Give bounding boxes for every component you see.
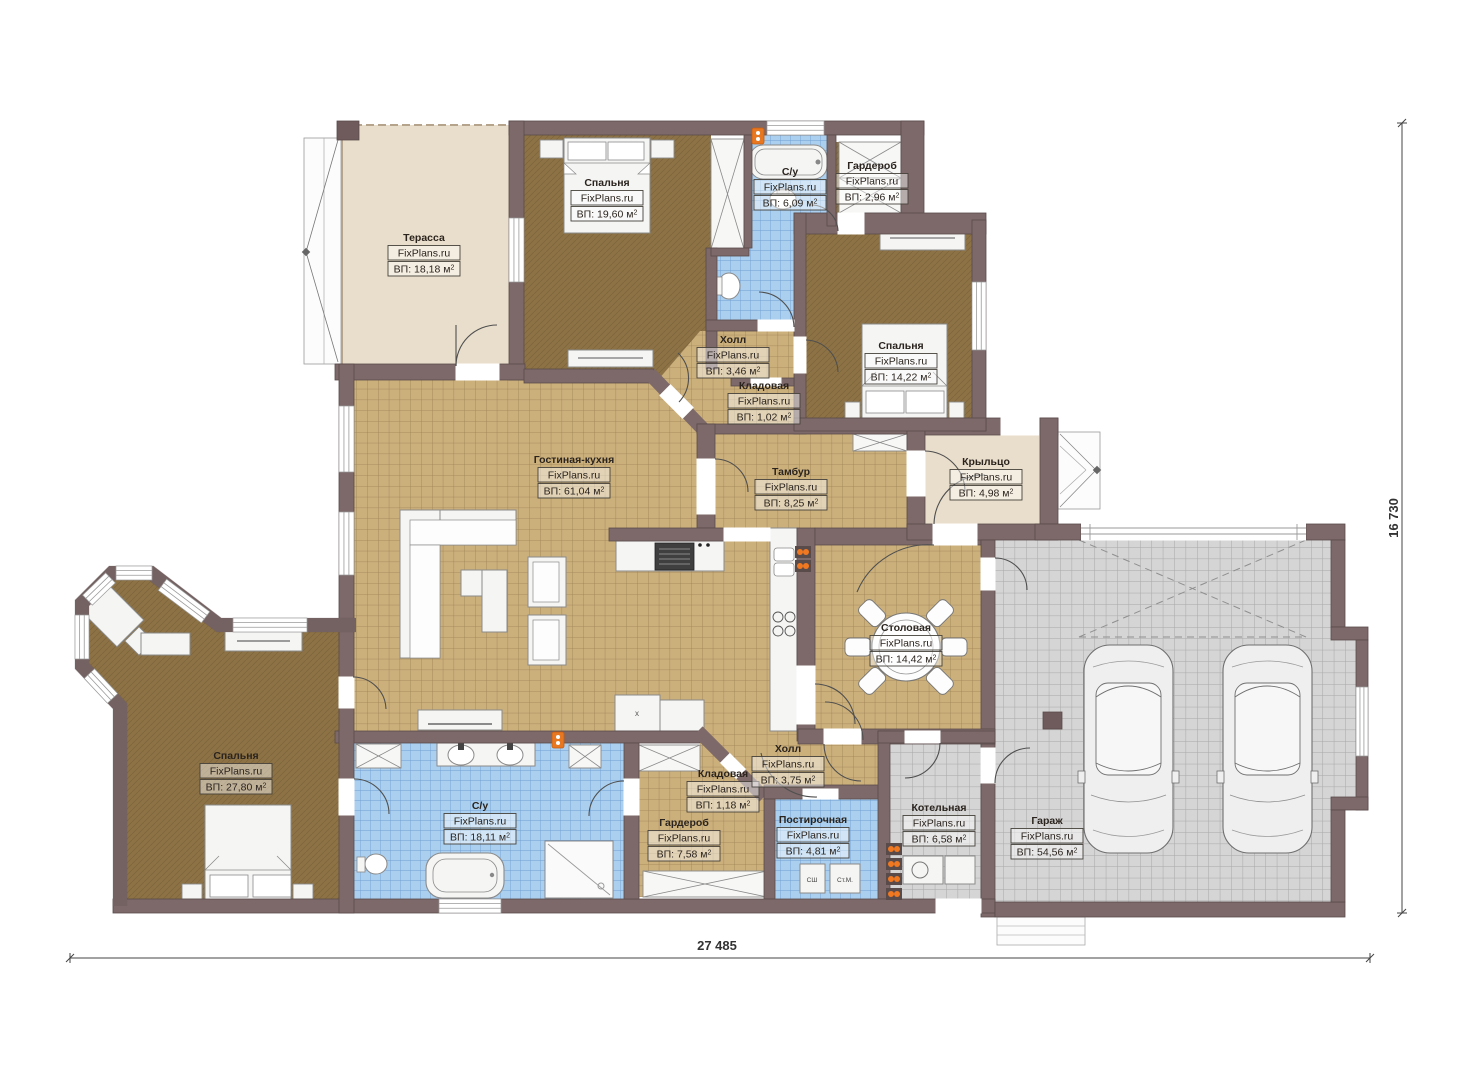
svg-text:FixPlans.ru: FixPlans.ru: [210, 766, 263, 778]
svg-text:FixPlans.ru: FixPlans.ru: [846, 176, 899, 188]
svg-text:FixPlans.ru: FixPlans.ru: [548, 470, 601, 482]
svg-text:FixPlans.ru: FixPlans.ru: [880, 638, 933, 650]
svg-text:Терасса: Терасса: [403, 232, 445, 244]
svg-text:ВП: 18,18 м2: ВП: 18,18 м2: [394, 264, 455, 276]
svg-text:x: x: [635, 709, 639, 718]
svg-text:FixPlans.ru: FixPlans.ru: [960, 472, 1013, 484]
svg-text:FixPlans.ru: FixPlans.ru: [658, 833, 711, 845]
svg-text:ВП: 18,11 м2: ВП: 18,11 м2: [450, 832, 510, 844]
svg-text:FixPlans.ru: FixPlans.ru: [762, 759, 815, 771]
svg-text:ВП: 6,09 м2: ВП: 6,09 м2: [763, 198, 818, 210]
svg-text:FixPlans.ru: FixPlans.ru: [707, 350, 760, 362]
svg-text:Гараж: Гараж: [1031, 815, 1063, 827]
svg-text:Котельная: Котельная: [912, 802, 967, 814]
svg-text:Холл: Холл: [775, 743, 801, 755]
svg-text:Гостиная-кухня: Гостиная-кухня: [534, 454, 614, 466]
svg-text:Столовая: Столовая: [881, 622, 931, 634]
svg-text:ВП: 3,46 м2: ВП: 3,46 м2: [706, 366, 761, 378]
svg-text:FixPlans.ru: FixPlans.ru: [787, 830, 840, 842]
svg-text:Холл: Холл: [720, 334, 746, 346]
svg-text:FixPlans.ru: FixPlans.ru: [697, 784, 750, 796]
svg-text:ВП: 1,18 м2: ВП: 1,18 м2: [696, 800, 751, 812]
svg-text:ВП: 4,98 м2: ВП: 4,98 м2: [959, 488, 1014, 500]
svg-text:ВП: 54,56 м2: ВП: 54,56 м2: [1017, 847, 1078, 859]
svg-text:ВП: 6,58 м2: ВП: 6,58 м2: [912, 834, 967, 846]
svg-text:Спальня: Спальня: [213, 750, 258, 762]
svg-text:СШ: СШ: [807, 877, 818, 884]
svg-text:ВП: 7,58 м2: ВП: 7,58 м2: [657, 849, 712, 861]
svg-text:ВП: 4,81 м2: ВП: 4,81 м2: [786, 846, 841, 858]
svg-text:Гардероб: Гардероб: [659, 817, 709, 829]
svg-text:Крыльцо: Крыльцо: [962, 456, 1010, 468]
svg-text:Кладовая: Кладовая: [698, 768, 748, 780]
svg-text:ВП: 3,75 м2: ВП: 3,75 м2: [761, 775, 816, 787]
svg-text:ВП: 14,42 м2: ВП: 14,42 м2: [876, 654, 937, 666]
svg-text:ВП: 27,80 м2: ВП: 27,80 м2: [206, 782, 267, 794]
svg-text:27 485: 27 485: [697, 938, 737, 953]
svg-text:Кладовая: Кладовая: [739, 380, 789, 392]
svg-text:16 730: 16 730: [1386, 498, 1401, 538]
svg-text:FixPlans.ru: FixPlans.ru: [1021, 831, 1074, 843]
svg-text:Гардероб: Гардероб: [847, 160, 897, 172]
svg-text:Ст.М.: Ст.М.: [837, 877, 853, 884]
svg-text:ВП: 1,02 м2: ВП: 1,02 м2: [737, 412, 792, 424]
svg-text:FixPlans.ru: FixPlans.ru: [765, 482, 818, 494]
svg-text:Спальня: Спальня: [878, 340, 923, 352]
svg-text:Постирочная: Постирочная: [779, 814, 847, 826]
svg-text:ВП: 14,22 м2: ВП: 14,22 м2: [871, 372, 932, 384]
svg-text:ВП: 8,25 м2: ВП: 8,25 м2: [764, 498, 819, 510]
svg-text:FixPlans.ru: FixPlans.ru: [738, 396, 791, 408]
svg-text:FixPlans.ru: FixPlans.ru: [913, 818, 966, 830]
svg-text:С/у: С/у: [472, 800, 489, 812]
svg-text:С/у: С/у: [782, 166, 799, 178]
svg-text:Тамбур: Тамбур: [772, 466, 810, 478]
svg-text:FixPlans.ru: FixPlans.ru: [875, 356, 928, 368]
svg-text:ВП: 2,96 м2: ВП: 2,96 м2: [845, 192, 900, 204]
svg-text:FixPlans.ru: FixPlans.ru: [764, 182, 817, 194]
svg-text:ВП: 61,04 м2: ВП: 61,04 м2: [544, 486, 605, 498]
svg-text:FixPlans.ru: FixPlans.ru: [581, 193, 634, 205]
svg-text:Спальня: Спальня: [584, 177, 629, 189]
svg-text:FixPlans.ru: FixPlans.ru: [454, 816, 507, 828]
svg-text:FixPlans.ru: FixPlans.ru: [398, 248, 451, 260]
svg-text:ВП: 19,60 м2: ВП: 19,60 м2: [577, 209, 638, 221]
